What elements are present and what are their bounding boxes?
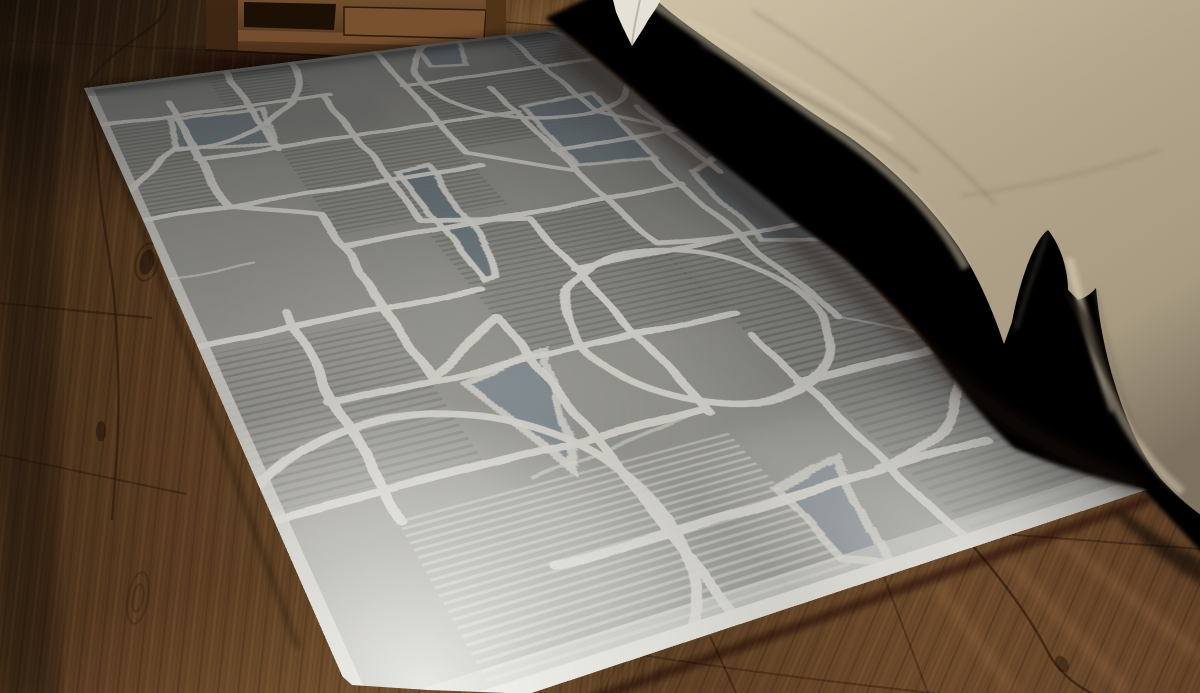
bed-layer [0, 0, 1200, 693]
rug-far-edge-shadow [84, 30, 558, 90]
bedroom-photo: Bedroom photograph: a gray abstract geom… [0, 0, 1200, 693]
